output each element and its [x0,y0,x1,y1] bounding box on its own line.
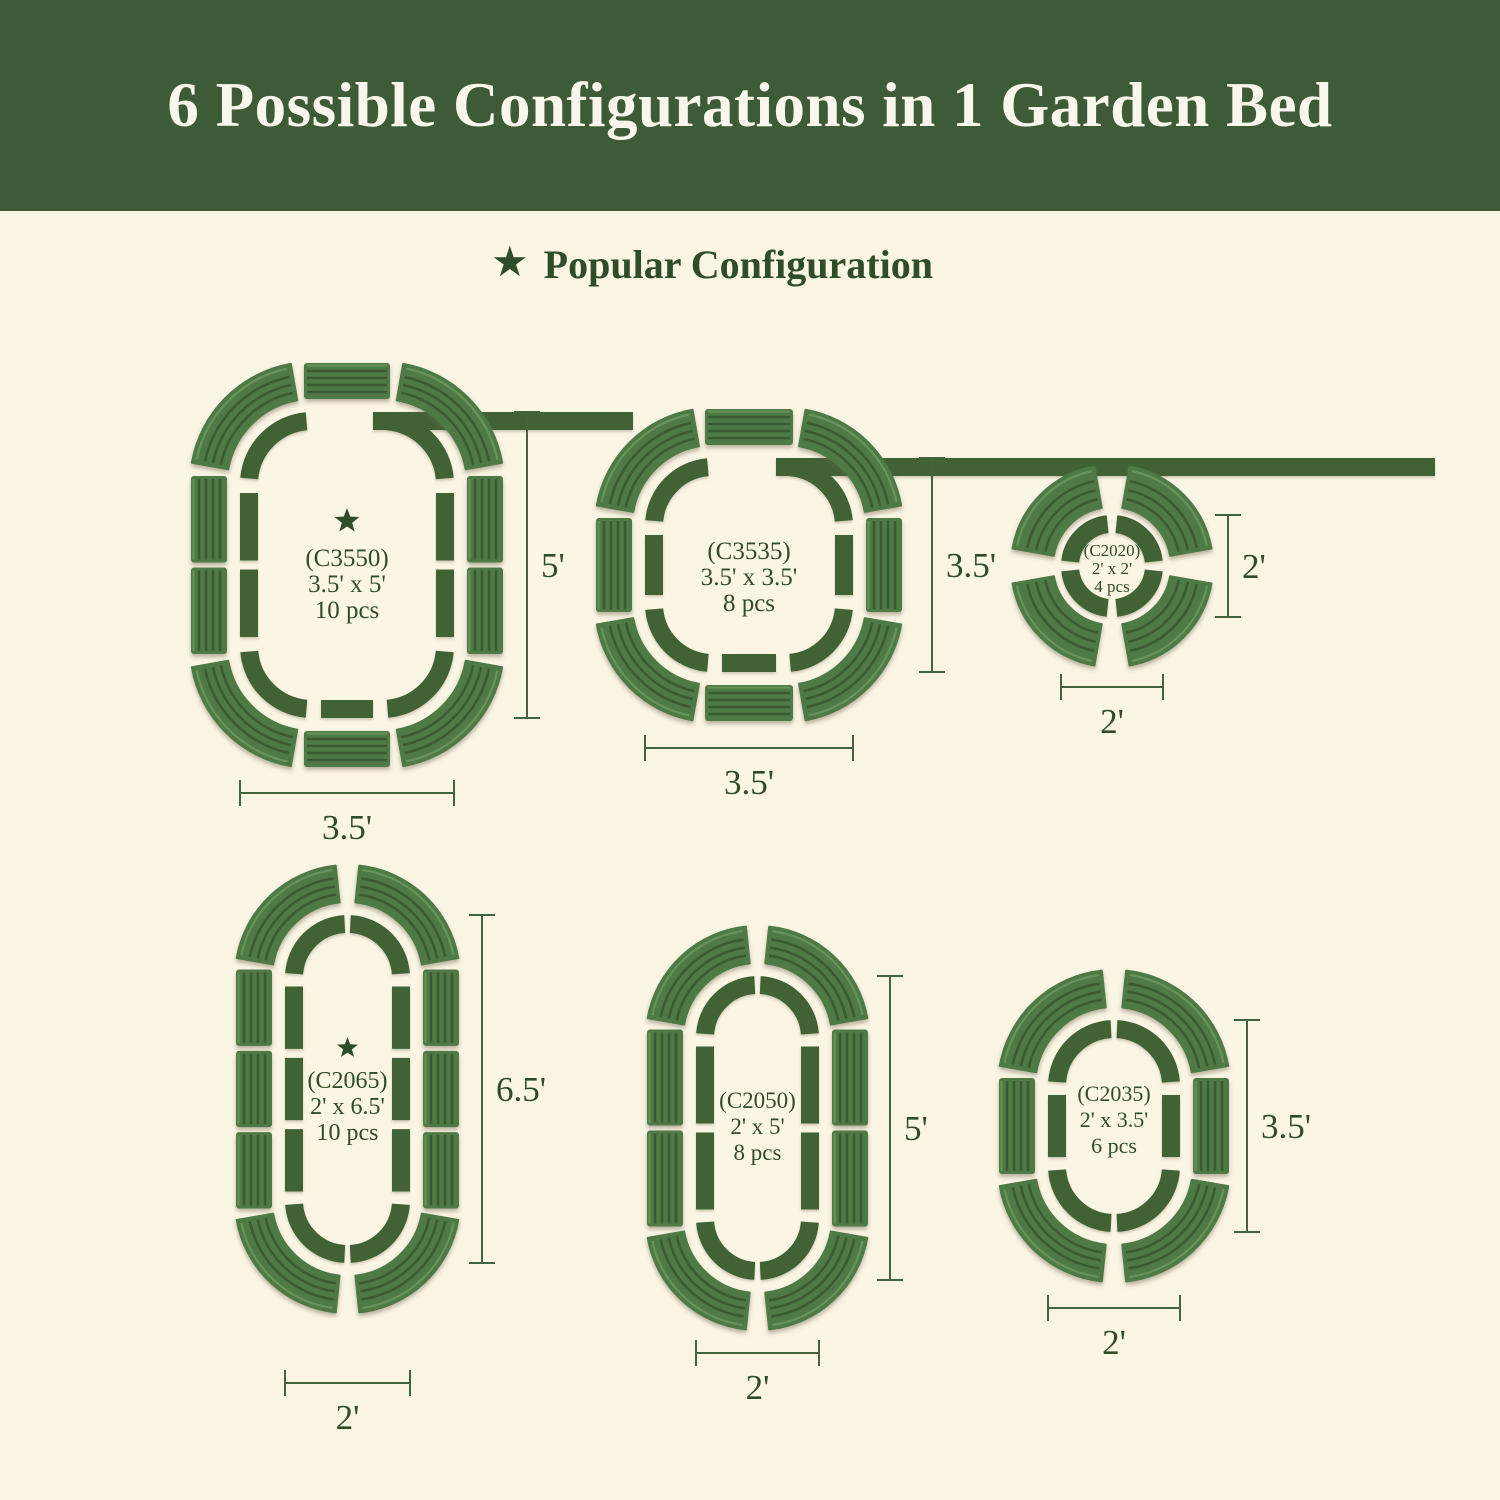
config-size: 2' x 6.5' [310,1094,385,1120]
side-panel-body [304,363,390,399]
popular-star-icon [337,1037,358,1057]
config-pieces: 8 pcs [734,1140,782,1165]
corner-arc-piece [705,1222,755,1271]
config-size: 2' x 2' [1092,559,1132,578]
corner-arc-piece [705,985,755,1034]
config-code: (C2020) [1084,541,1141,560]
width-dimension: 3.5' [240,780,454,847]
corner-panel-piece [648,927,750,1025]
config-diagram-C3535: (C3535)3.5' x 3.5'8 pcs3.5'3.5' [596,409,1435,802]
corner-arc-piece [387,651,444,708]
config-pieces: 10 pcs [317,1120,379,1146]
side-panel-body [236,970,272,1046]
height-dimension: 3.5' [919,458,996,672]
side-panel-body [467,568,503,655]
side-panel-body [999,1078,1035,1174]
width-dimension: 2' [1061,674,1163,741]
corner-arc-piece [294,1204,345,1254]
corner-panel-piece [355,1214,458,1313]
height-dimension: 5' [877,976,928,1280]
width-dimension: 2' [696,1340,819,1407]
side-panel-piece [236,1051,272,1127]
side-panel-piece [423,970,459,1046]
side-panel-piece [866,518,902,612]
corner-panel-piece [237,866,340,965]
side-panel-body [423,970,459,1046]
side-panel-body [832,1030,868,1126]
height-dimension-label: 5' [904,1109,928,1148]
config-size: 2' x 5' [730,1114,784,1139]
side-panel-piece [647,1131,683,1227]
config-diagram-C2035: (C2035)2' x 3.5'6 pcs3.5'2' [999,971,1311,1362]
width-dimension: 3.5' [645,735,853,802]
popular-star-icon [335,508,360,532]
side-panel-piece [236,1132,272,1208]
width-dimension-label: 2' [746,1368,770,1407]
corner-arc-piece [654,467,708,521]
height-dimension-label: 2' [1242,547,1266,586]
height-dimension-label: 3.5' [1261,1107,1311,1146]
side-panel-piece [191,476,227,563]
corner-arc-piece [350,924,401,974]
config-label-block: (C2035)2' x 3.5'6 pcs [1077,1081,1150,1158]
config-code: (C2065) [308,1068,388,1094]
side-panel-body [191,476,227,563]
side-panel-piece [304,731,390,767]
infographic-canvas: 6 Possible Configurations in 1 Garden Be… [0,0,1500,1500]
config-label-block: (C2065)2' x 6.5'10 pcs [308,1037,388,1146]
corner-arc-piece [790,609,844,663]
corner-panel-piece [597,618,699,720]
config-code: (C2035) [1077,1081,1150,1106]
side-panel-body [236,1051,272,1127]
corner-panel-piece [355,866,458,965]
config-code: (C3535) [707,538,790,565]
corner-arc-piece [1117,1170,1171,1223]
config-code: (C3550) [305,545,388,572]
height-dimension: 3.5' [1234,1020,1311,1232]
corner-arc-piece [1057,1170,1111,1223]
side-panel-piece [467,568,503,655]
config-size: 3.5' x 5' [308,571,386,598]
config-pieces: 8 pcs [723,590,775,617]
side-panel-body [191,568,227,655]
side-panel-body [304,731,390,767]
side-panel-body [1193,1078,1229,1174]
corner-panel-piece [397,661,502,766]
height-dimension: 5' [514,412,565,718]
corner-arc-piece [760,1222,810,1271]
side-panel-body [832,1131,868,1227]
config-label-block: (C2050)2' x 5'8 pcs [719,1088,796,1165]
side-panel-piece [191,568,227,655]
corner-arc-piece [294,924,345,974]
corner-arc-piece [249,651,306,708]
corner-arc-piece [350,1204,401,1254]
side-panel-body [866,518,902,612]
config-label-block: (C2020)2' x 2'4 pcs [1084,541,1141,596]
side-panel-piece [1193,1078,1229,1174]
corner-arc-piece [1057,1029,1111,1082]
side-panel-piece [423,1051,459,1127]
config-size: 2' x 3.5' [1080,1107,1148,1132]
corner-panel-piece [648,1231,750,1329]
side-panel-body [647,1131,683,1227]
corner-panel-piece [765,927,867,1025]
corner-panel-piece [799,618,901,720]
width-dimension-label: 3.5' [322,808,372,847]
config-diagram-C2050: (C2050)2' x 5'8 pcs5'2' [647,927,928,1407]
corner-panel-piece [1122,1180,1228,1282]
height-dimension: 2' [1215,515,1266,617]
corner-arc-piece [760,985,810,1034]
width-dimension: 2' [1048,1295,1180,1362]
side-panel-piece [999,1078,1035,1174]
config-label-block: (C3550)3.5' x 5'10 pcs [305,508,388,624]
config-diagram-C3550: (C3550)3.5' x 5'10 pcs5'3.5' [191,363,633,847]
side-panel-body [705,409,793,445]
side-panel-piece [832,1030,868,1126]
side-panel-body [467,476,503,563]
side-panel-body [423,1132,459,1208]
height-dimension-label: 6.5' [496,1070,546,1109]
side-panel-piece [832,1131,868,1227]
width-dimension-label: 2' [1100,702,1124,741]
corner-arc-piece [654,609,708,663]
corner-panel-piece [1000,971,1106,1073]
width-dimension-label: 2' [336,1398,360,1437]
configurations-diagram-layer: (C3550)3.5' x 5'10 pcs5'3.5'(C3535)3.5' … [0,0,1500,1500]
corner-panel-piece [765,1231,867,1329]
side-panel-piece [467,476,503,563]
side-panel-body [647,1030,683,1126]
side-panel-piece [596,518,632,612]
height-dimension-label: 3.5' [946,546,996,585]
side-panel-piece [705,685,793,721]
width-dimension-label: 3.5' [724,763,774,802]
corner-arc-piece [1117,1029,1171,1082]
config-diagram-C2065: (C2065)2' x 6.5'10 pcs6.5'2' [236,866,546,1437]
height-dimension: 6.5' [469,915,546,1263]
corner-panel-piece [192,364,297,469]
corner-panel-piece [1122,971,1228,1073]
side-panel-body [596,518,632,612]
side-panel-body [236,1132,272,1208]
side-panel-piece [705,409,793,445]
width-dimension: 2' [285,1370,410,1437]
side-panel-piece [236,970,272,1046]
side-panel-body [423,1051,459,1127]
height-dimension-label: 5' [541,546,565,585]
config-diagram-C2020: (C2020)2' x 2'4 pcs2'2' [1013,467,1266,741]
side-panel-piece [423,1132,459,1208]
config-pieces: 4 pcs [1094,577,1129,596]
config-size: 3.5' x 3.5' [701,564,798,591]
corner-panel-piece [192,661,297,766]
config-code: (C2050) [719,1088,796,1113]
corner-arc-piece [249,421,306,478]
corner-panel-piece [1000,1180,1106,1282]
side-panel-body [705,685,793,721]
side-panel-piece [647,1030,683,1126]
width-dimension-label: 2' [1102,1323,1126,1362]
side-panel-piece [304,363,390,399]
config-pieces: 10 pcs [315,597,380,624]
config-pieces: 6 pcs [1091,1133,1137,1158]
config-label-block: (C3535)3.5' x 3.5'8 pcs [701,538,798,617]
corner-panel-piece [237,1214,340,1313]
